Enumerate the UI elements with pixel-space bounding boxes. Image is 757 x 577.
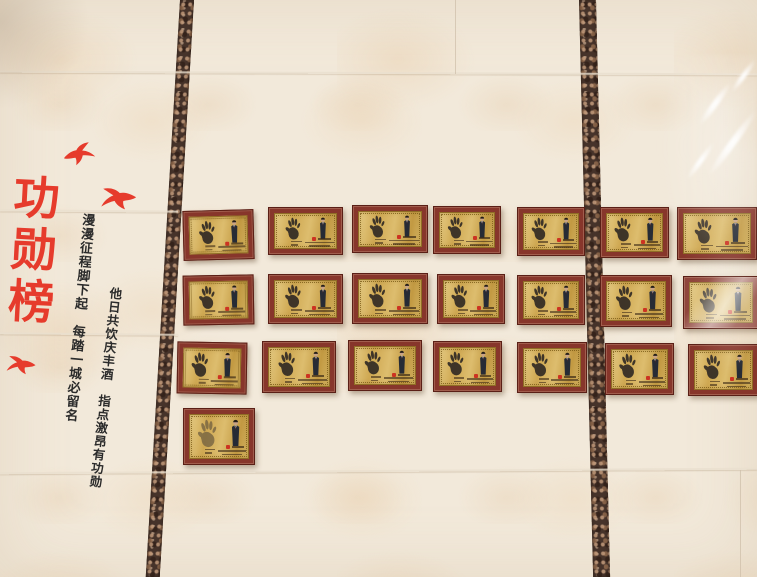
subtitle-caption <box>389 240 418 245</box>
red-mark-icon <box>728 310 732 314</box>
text-line <box>285 381 292 383</box>
text-line <box>554 315 573 317</box>
text-line <box>483 307 494 309</box>
tile-grout-line-vertical <box>740 470 741 577</box>
calligraphy-column-right: 他日共饮庆丰酒 指点激昂有功勋 <box>85 286 125 489</box>
handprint-icon <box>613 352 644 383</box>
text-line <box>724 318 745 320</box>
plaque-gold-plate <box>358 211 422 247</box>
handprint-plaque <box>433 341 502 392</box>
text-line <box>474 314 493 316</box>
text-line <box>538 241 548 243</box>
text-line <box>389 310 418 312</box>
swallow-bird-icon <box>4 350 38 381</box>
text-line <box>701 248 709 250</box>
name-caption <box>392 373 411 377</box>
text-line <box>224 376 235 378</box>
subtitle-caption <box>389 310 418 315</box>
handprint-caption <box>538 241 548 246</box>
handprint-icon <box>185 351 216 382</box>
handprint-icon <box>360 213 394 242</box>
handprint-caption <box>622 312 632 317</box>
subtitle-caption <box>218 450 246 455</box>
text-line <box>554 246 573 248</box>
text-line <box>622 312 632 314</box>
text-line <box>550 243 576 245</box>
red-mark-icon <box>730 377 734 381</box>
text-line <box>318 238 331 240</box>
handprint-icon <box>696 353 728 384</box>
plaque-gold-plate <box>443 280 499 318</box>
text-line <box>398 374 411 376</box>
text-line <box>222 249 242 251</box>
portrait-photo <box>476 216 488 238</box>
handprint-caption <box>371 376 382 381</box>
text-line <box>312 375 325 377</box>
text-line <box>467 378 493 380</box>
text-line <box>403 236 416 238</box>
red-mark-icon <box>557 307 561 311</box>
calligraphy-column-left: 漫漫征程脚下起 每踏一城必留名 <box>60 212 97 423</box>
text-line <box>232 446 244 448</box>
red-mark-icon <box>646 376 650 380</box>
name-caption <box>557 307 574 311</box>
portrait-photo <box>561 352 574 376</box>
text-line <box>375 309 386 311</box>
handprint-icon <box>691 285 725 317</box>
plaque-gold-plate <box>274 280 337 318</box>
text-line <box>403 307 416 309</box>
subtitle-caption <box>218 311 245 316</box>
subtitle-caption <box>716 246 747 251</box>
handprint-caption <box>205 245 215 250</box>
red-mark-icon <box>558 375 562 379</box>
handprint-icon <box>191 284 223 314</box>
text-line <box>198 379 208 381</box>
text-line <box>470 244 489 246</box>
text-line <box>285 378 296 380</box>
red-mark-icon <box>641 240 645 244</box>
text-line <box>205 452 212 454</box>
portrait-photo <box>400 283 414 307</box>
handprint-caption <box>539 378 549 383</box>
text-line <box>710 381 720 383</box>
red-mark-icon <box>306 374 310 378</box>
handprint-plaque <box>605 343 674 395</box>
text-line <box>375 313 383 315</box>
red-mark-icon <box>225 242 229 246</box>
handprint-caption <box>205 310 215 315</box>
text-line <box>302 383 323 385</box>
reflection-streak <box>697 81 732 127</box>
name-caption <box>306 374 325 378</box>
portrait-photo <box>644 217 657 241</box>
handprint-plaque <box>262 341 336 393</box>
handprint-icon <box>191 417 223 452</box>
handprint-icon <box>525 216 555 245</box>
text-line <box>205 310 215 312</box>
name-caption <box>646 376 663 380</box>
subtitle-caption <box>634 244 660 249</box>
portrait-photo <box>560 217 572 240</box>
handprint-plaque <box>517 342 587 393</box>
red-mark-icon <box>226 445 230 449</box>
handprint-caption <box>205 449 215 454</box>
text-line <box>734 311 747 313</box>
handprint-plaque <box>688 344 757 396</box>
tile-grout-line <box>0 332 178 336</box>
text-line <box>723 382 750 384</box>
subtitle-caption <box>467 378 493 383</box>
text-line <box>480 375 491 377</box>
handprint-icon <box>270 350 303 381</box>
text-line <box>309 314 330 316</box>
name-caption <box>725 241 745 245</box>
name-caption <box>218 375 235 379</box>
text-line <box>470 310 496 312</box>
text-line <box>720 315 749 317</box>
text-line <box>375 242 383 244</box>
handprint-plaque <box>268 207 343 255</box>
plaque-gold-plate <box>358 279 422 318</box>
red-mark-icon <box>725 241 729 245</box>
plaque-gold-plate <box>523 281 579 319</box>
text-line <box>454 243 461 245</box>
text-line <box>291 241 302 243</box>
text-line <box>375 239 386 241</box>
subtitle-caption <box>635 313 663 318</box>
name-caption <box>728 310 747 314</box>
text-line <box>706 317 714 319</box>
text-line <box>389 240 418 242</box>
text-line <box>298 379 327 381</box>
subtitle-caption <box>550 311 576 316</box>
handprint-plaque <box>183 408 255 465</box>
title-char: 榜 <box>2 274 61 329</box>
name-caption <box>557 238 574 242</box>
handprint-caption <box>626 380 636 385</box>
handprint-icon <box>685 216 721 248</box>
text-line <box>393 243 414 245</box>
text-line <box>222 314 242 316</box>
handprint-caption <box>458 309 468 314</box>
portrait-photo <box>316 284 330 308</box>
portrait-photo <box>309 351 323 376</box>
red-mark-icon <box>225 307 229 311</box>
text-line <box>305 310 334 312</box>
text-line <box>371 380 378 382</box>
plaque-gold-plate <box>189 414 249 459</box>
handprint-plaque <box>268 274 343 324</box>
text-line <box>621 247 628 249</box>
subtitle-caption <box>305 310 334 315</box>
text-line <box>639 317 659 319</box>
portrait-photo <box>395 350 409 374</box>
text-line <box>231 242 243 244</box>
text-line <box>634 244 660 246</box>
title-char: 勋 <box>5 222 64 277</box>
portrait-photo <box>477 351 490 375</box>
portrait-photo <box>228 284 241 308</box>
reflection-streak <box>730 58 757 93</box>
text-line <box>305 242 334 244</box>
red-mark-icon <box>392 373 396 377</box>
handprint-caption <box>291 309 302 314</box>
handprint-plaque <box>182 209 254 261</box>
red-mark-icon <box>474 374 478 378</box>
subtitle-caption <box>550 243 576 248</box>
text-line <box>466 241 492 243</box>
subtitle-caption <box>551 379 578 384</box>
text-line <box>309 245 330 247</box>
text-line <box>639 381 665 383</box>
name-caption <box>397 306 416 310</box>
handprint-icon <box>445 283 475 313</box>
plaque-gold-plate <box>606 281 666 321</box>
text-line <box>539 378 549 380</box>
text-line <box>647 241 658 243</box>
plaque-gold-plate <box>611 349 668 389</box>
text-line <box>454 377 464 379</box>
plaque-gold-plate <box>189 215 249 255</box>
handprint-plaque <box>437 274 505 324</box>
text-line <box>198 382 205 384</box>
text-line <box>550 311 576 313</box>
title-char: 功 <box>7 171 66 226</box>
text-line <box>479 237 490 239</box>
text-line <box>731 242 745 244</box>
name-caption <box>641 240 658 244</box>
text-line <box>706 314 717 316</box>
red-mark-icon <box>477 306 481 310</box>
text-line <box>211 380 238 382</box>
handprint-caption <box>375 239 386 244</box>
plaque-gold-plate <box>523 348 581 387</box>
text-line <box>205 245 215 247</box>
red-mark-icon <box>312 306 316 310</box>
red-mark-icon <box>557 238 561 242</box>
subtitle-caption <box>720 315 749 320</box>
text-line <box>710 384 717 386</box>
handprint-icon <box>441 214 471 242</box>
swallow-bird-icon <box>61 140 97 169</box>
text-line <box>635 313 663 315</box>
plaque-gold-plate <box>354 346 416 385</box>
honor-wall-photo: 功 勋 榜 漫漫征程脚下起 每踏一城必留名 他日共饮庆丰酒 指点激昂有功勋 <box>0 0 757 577</box>
text-line <box>727 386 747 388</box>
name-caption <box>312 306 331 310</box>
name-caption <box>558 375 575 379</box>
handprint-icon <box>608 216 638 246</box>
handprint-plaque <box>600 275 672 327</box>
name-caption <box>730 377 748 381</box>
plaque-gold-plate <box>683 213 751 254</box>
subtitle-caption <box>639 381 665 386</box>
text-line <box>291 309 302 311</box>
handprint-icon <box>360 282 394 313</box>
text-line <box>638 248 657 250</box>
red-mark-icon <box>218 375 222 379</box>
portrait-photo <box>316 217 330 239</box>
text-line <box>538 314 545 316</box>
portrait-photo <box>646 285 659 310</box>
text-line <box>621 243 631 245</box>
portrait-photo <box>229 419 242 447</box>
subtitle-caption <box>466 241 492 246</box>
plaque-gold-plate <box>689 282 753 323</box>
plaque-gold-plate <box>439 347 496 386</box>
plaque-gold-plate <box>606 213 663 252</box>
handprint-icon <box>525 284 555 314</box>
text-line <box>393 314 414 316</box>
text-line <box>388 381 409 383</box>
text-line <box>205 249 212 251</box>
handprint-icon <box>356 349 389 380</box>
red-mark-icon <box>397 306 401 310</box>
portrait-photo <box>400 215 414 237</box>
portrait-photo <box>731 286 745 311</box>
text-line <box>205 449 215 451</box>
subtitle-caption <box>218 246 245 252</box>
handprint-icon <box>276 215 309 244</box>
text-line <box>652 377 663 379</box>
text-line <box>218 246 245 248</box>
plaque-gold-plate <box>274 213 337 249</box>
text-line <box>626 383 633 385</box>
handprint-plaque <box>517 275 585 325</box>
handprint-plaque <box>348 340 422 391</box>
name-caption <box>226 445 244 449</box>
handprint-caption <box>285 378 296 383</box>
plaque-gold-plate <box>268 347 330 387</box>
handprint-caption <box>706 314 717 319</box>
portrait-photo <box>649 353 662 378</box>
handprint-caption <box>291 241 302 246</box>
reflection-streak <box>685 141 716 181</box>
tile-grout-line-vertical <box>455 0 456 74</box>
name-caption <box>474 374 491 378</box>
handprint-plaque <box>177 341 248 394</box>
wall-title: 功 勋 榜 <box>2 171 66 330</box>
text-line <box>626 380 636 382</box>
portrait-photo <box>228 219 242 243</box>
handprint-icon <box>191 219 223 249</box>
corner-shadow <box>0 0 90 110</box>
text-line <box>454 240 464 242</box>
name-caption <box>477 306 494 310</box>
handprint-icon <box>525 351 556 381</box>
text-line <box>716 246 747 248</box>
handprint-caption <box>454 240 464 245</box>
handprint-caption <box>375 309 386 314</box>
text-line <box>291 244 298 246</box>
handprint-plaque <box>433 206 501 254</box>
handprint-plaque <box>517 207 585 256</box>
tile-grout-line <box>0 71 757 76</box>
plaque-gold-plate <box>189 280 249 319</box>
text-line <box>649 309 661 311</box>
handprint-icon <box>441 350 471 380</box>
text-line <box>538 245 545 247</box>
handprint-plaque <box>183 274 255 325</box>
plaque-gold-plate <box>439 212 495 248</box>
text-line <box>563 308 574 310</box>
red-mark-icon <box>643 308 647 312</box>
subtitle-caption <box>470 310 496 315</box>
plaque-gold-plate <box>523 213 579 250</box>
handprint-plaque <box>677 207 757 260</box>
text-line <box>371 376 382 378</box>
text-line <box>218 311 245 313</box>
handprint-plaque <box>352 273 428 324</box>
text-line <box>563 239 574 241</box>
plaque-gold-plate <box>183 347 242 388</box>
portrait-photo <box>728 217 743 242</box>
text-line <box>231 307 243 309</box>
tile-grout-line <box>0 468 757 475</box>
text-line <box>564 376 575 378</box>
portrait-photo <box>733 354 746 379</box>
text-line <box>454 381 461 383</box>
text-line <box>471 382 490 384</box>
handprint-caption <box>710 381 720 386</box>
handprint-caption <box>198 379 208 384</box>
subtitle-caption <box>305 242 334 247</box>
text-line <box>205 314 212 316</box>
handprint-plaque <box>352 205 428 253</box>
handprint-caption <box>538 310 548 315</box>
text-line <box>721 249 744 251</box>
handprint-plaque <box>600 207 669 258</box>
portrait-photo <box>560 285 572 309</box>
text-line <box>215 384 234 386</box>
text-line <box>701 245 713 247</box>
subtitle-caption <box>384 377 413 382</box>
text-line <box>291 313 298 315</box>
subtitle-caption <box>211 380 238 385</box>
text-line <box>458 309 468 311</box>
text-line <box>222 454 242 456</box>
name-caption <box>643 308 661 312</box>
text-line <box>643 385 662 387</box>
subtitle-caption <box>298 379 327 384</box>
text-line <box>622 315 629 317</box>
text-line <box>384 377 413 379</box>
text-line <box>538 310 548 312</box>
text-line <box>736 378 748 380</box>
handprint-caption <box>701 245 713 250</box>
plaque-gold-plate <box>694 350 753 390</box>
handprint-caption <box>454 377 464 382</box>
handprint-plaque <box>683 276 757 329</box>
handprint-caption <box>621 243 631 248</box>
text-line <box>458 313 465 315</box>
text-line <box>555 383 574 385</box>
portrait-photo <box>480 284 492 308</box>
handprint-icon <box>276 282 309 312</box>
text-line <box>539 382 546 384</box>
text-line <box>318 307 331 309</box>
subtitle-caption <box>723 382 750 387</box>
portrait-photo <box>221 352 234 377</box>
handprint-icon <box>608 284 640 315</box>
text-line <box>218 450 246 452</box>
text-line <box>551 379 578 381</box>
